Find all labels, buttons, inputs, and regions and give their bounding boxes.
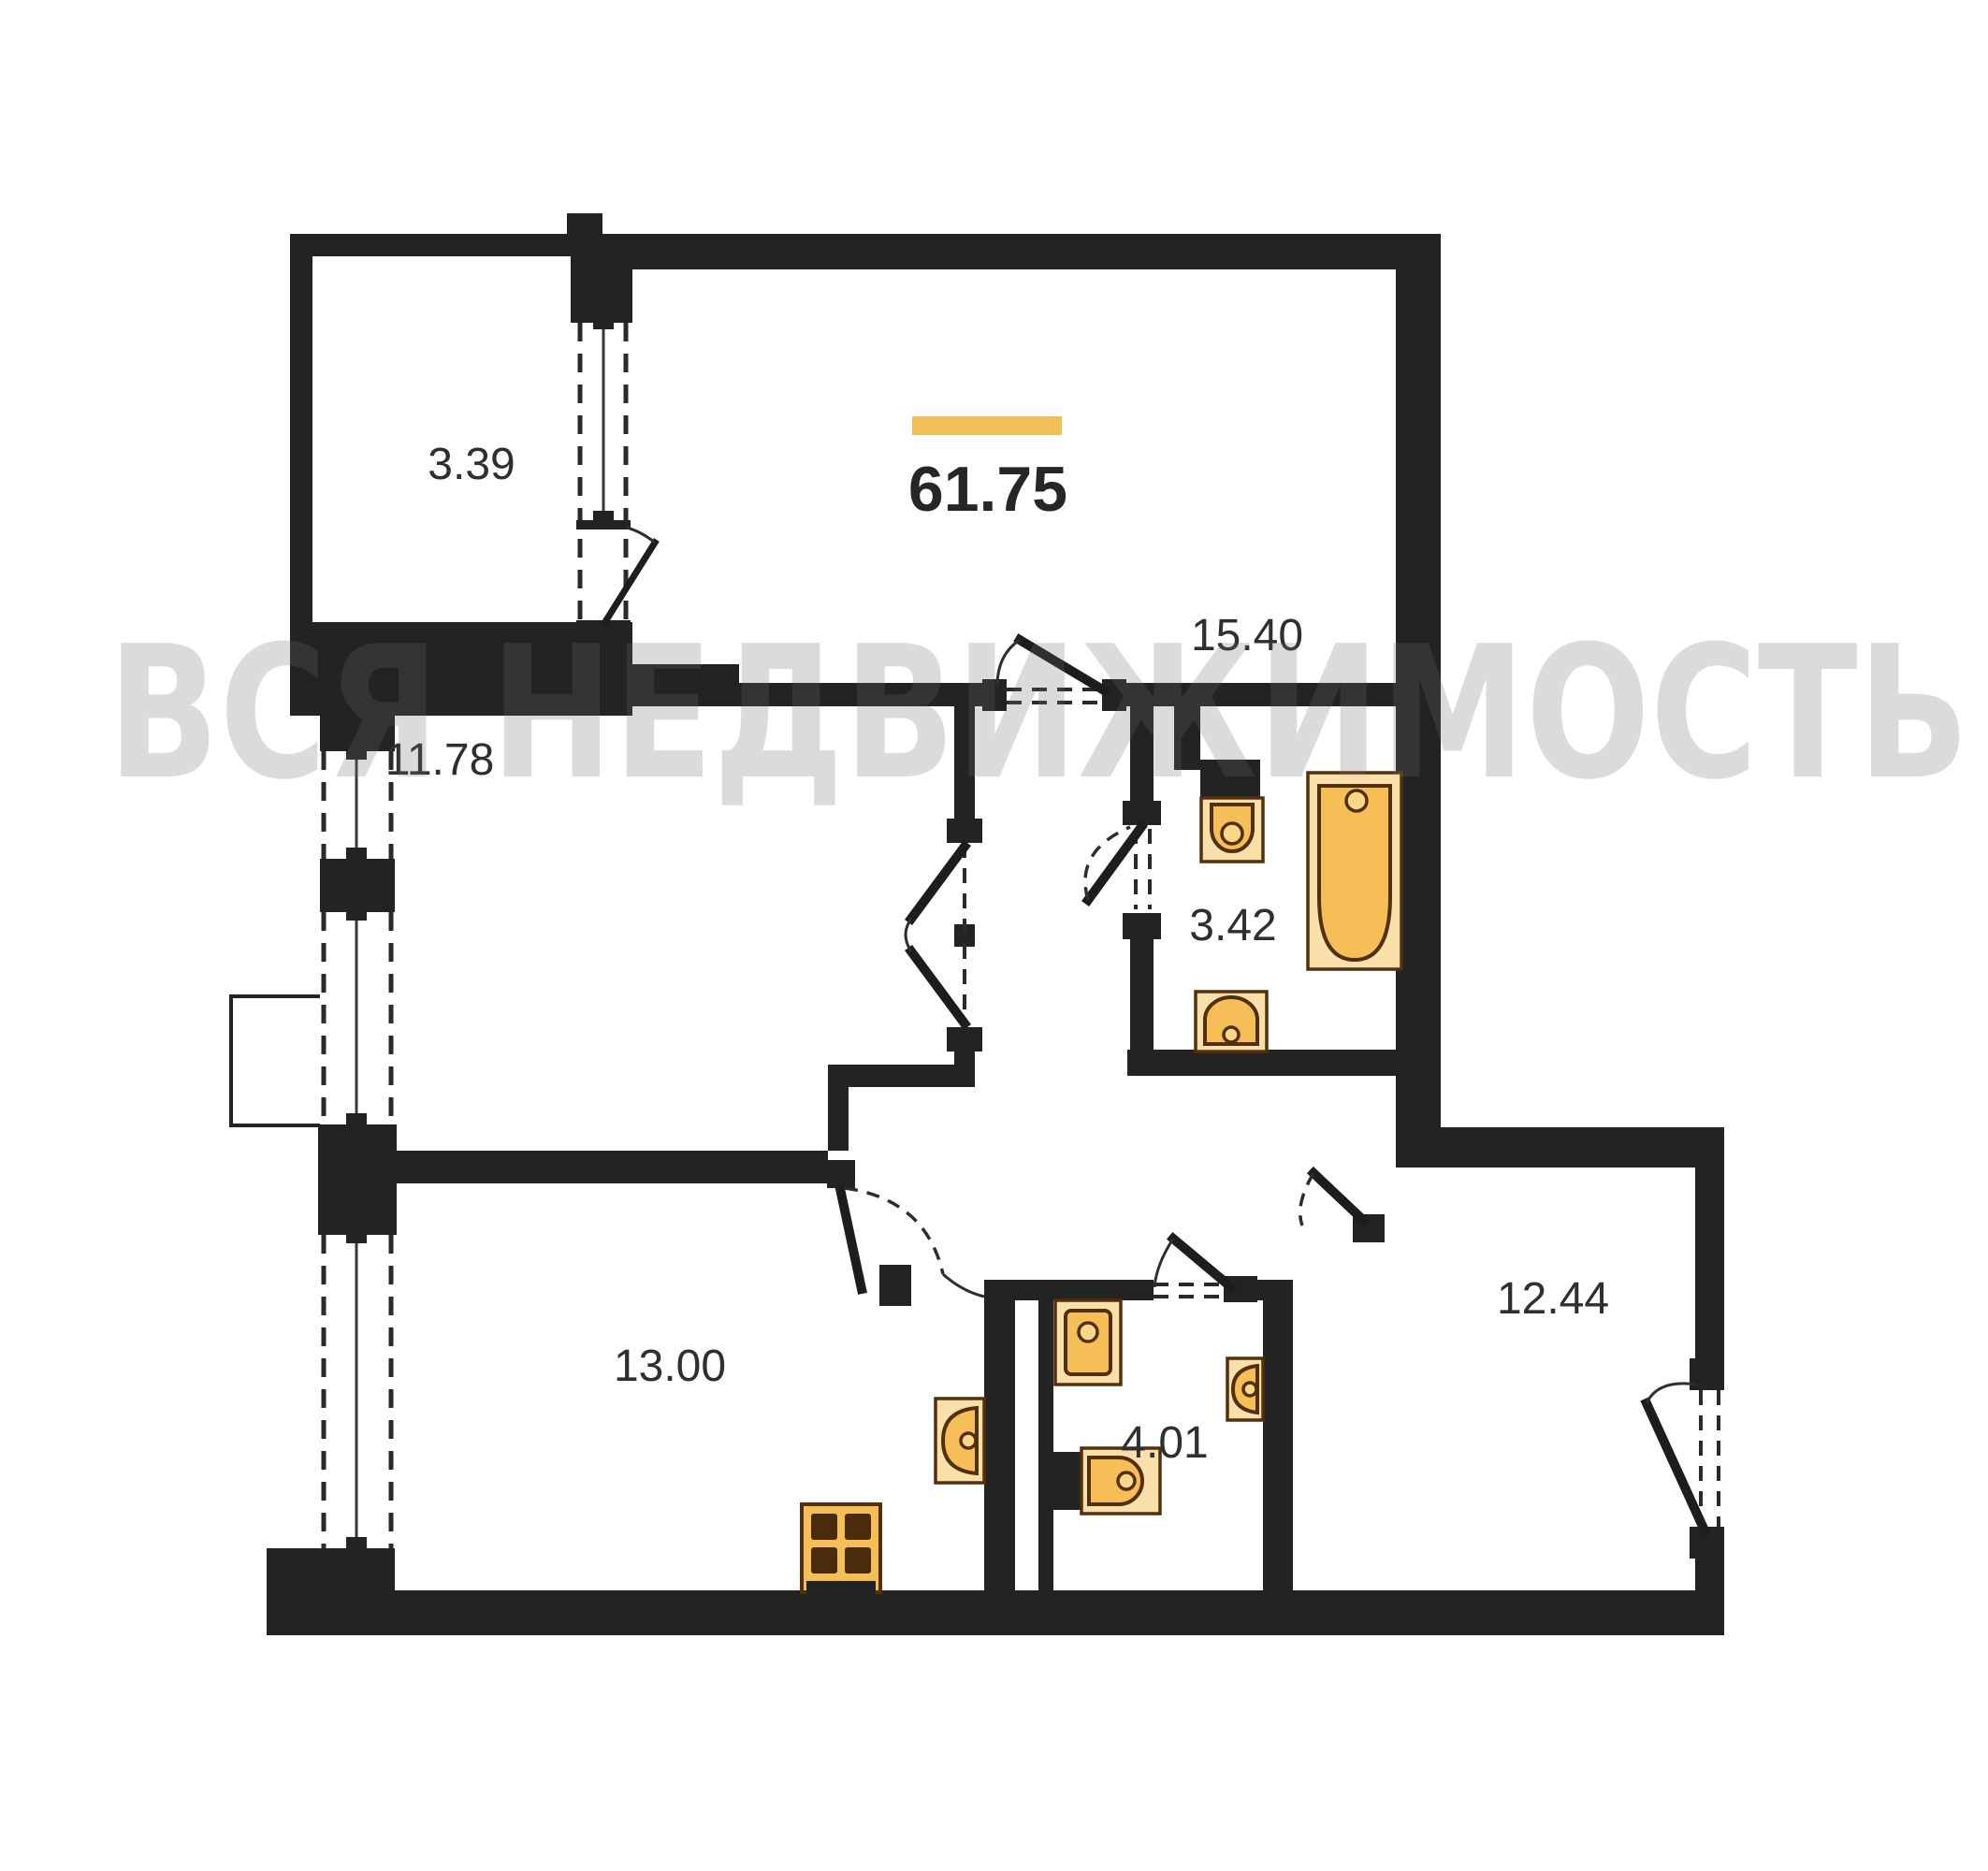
sink-icon — [1227, 1358, 1263, 1420]
total-area-accent-bar — [912, 416, 1062, 435]
watermark-overlay-text: ВСЯ НЕДВИЖИМОСТЬ — [108, 607, 1969, 820]
floor-plan-image: ВСЯ НЕДВИЖИМОСТЬ — [0, 0, 1988, 1871]
room-label-hall: 12.44 — [1497, 1274, 1609, 1324]
floor-plan-svg: ВСЯ НЕДВИЖИМОСТЬ — [0, 0, 1988, 1871]
room-label-bathroom: 3.42 — [1189, 901, 1276, 950]
total-area-label: 61.75 — [908, 454, 1067, 525]
room-label-balcony: 3.39 — [428, 440, 515, 489]
washing-machine-icon — [1055, 1300, 1121, 1385]
room-label-wc: 4.01 — [1121, 1418, 1208, 1468]
sink-icon — [1196, 992, 1267, 1052]
kitchen-sink-icon — [936, 1399, 984, 1483]
stove-icon — [802, 1504, 880, 1607]
room-label-kitchen-living: 13.00 — [614, 1342, 726, 1391]
